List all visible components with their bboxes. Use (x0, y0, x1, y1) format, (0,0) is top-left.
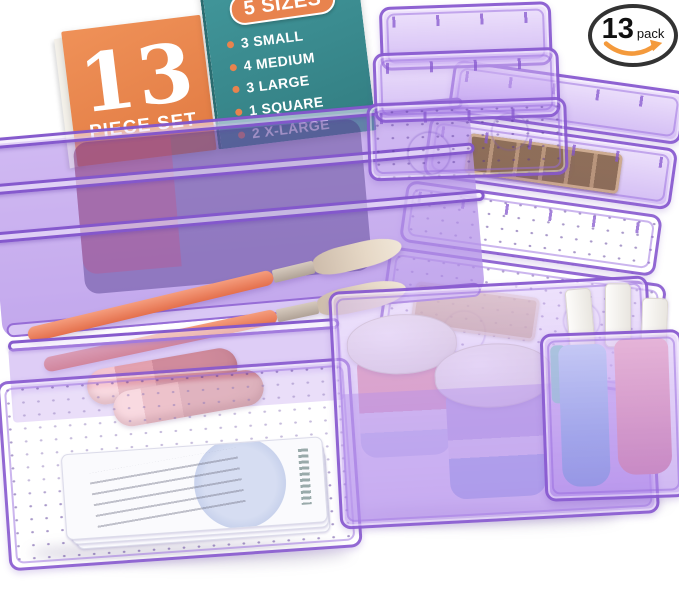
small-bin (366, 97, 569, 182)
product-photo-stage: 13 PIECE SET 5 SIZES 3 SMALL 4 MEDIUM 3 … (0, 0, 679, 614)
polish-bin-group (538, 283, 679, 508)
bullet-dot-icon (232, 86, 240, 94)
info-card-left-panel: 13 PIECE SET (61, 15, 217, 167)
sheet-packet (61, 436, 328, 540)
small-bin-stack (363, 0, 575, 199)
piece-count: 13 (76, 37, 199, 119)
pack-badge: 13 pack (588, 4, 678, 67)
sizes-panel: 5 SIZES 3 SMALL 4 MEDIUM 3 LARGE 1 SQUAR… (199, 0, 377, 149)
bullet-dot-icon (238, 131, 246, 139)
bullet-dot-icon (235, 108, 243, 116)
square-bin-front (0, 357, 363, 571)
small-polish-bin (540, 329, 679, 502)
packet-barcode (298, 448, 312, 505)
square-bin-group (0, 293, 371, 574)
paper-sheets (61, 436, 335, 550)
amazon-smile-icon (602, 39, 664, 59)
size-list: 3 SMALL 4 MEDIUM 3 LARGE 1 SQUARE 2 X-LA… (208, 17, 377, 149)
bullet-dot-icon (227, 41, 235, 49)
brush-ferrule (272, 260, 316, 282)
bullet-dot-icon (229, 63, 237, 71)
